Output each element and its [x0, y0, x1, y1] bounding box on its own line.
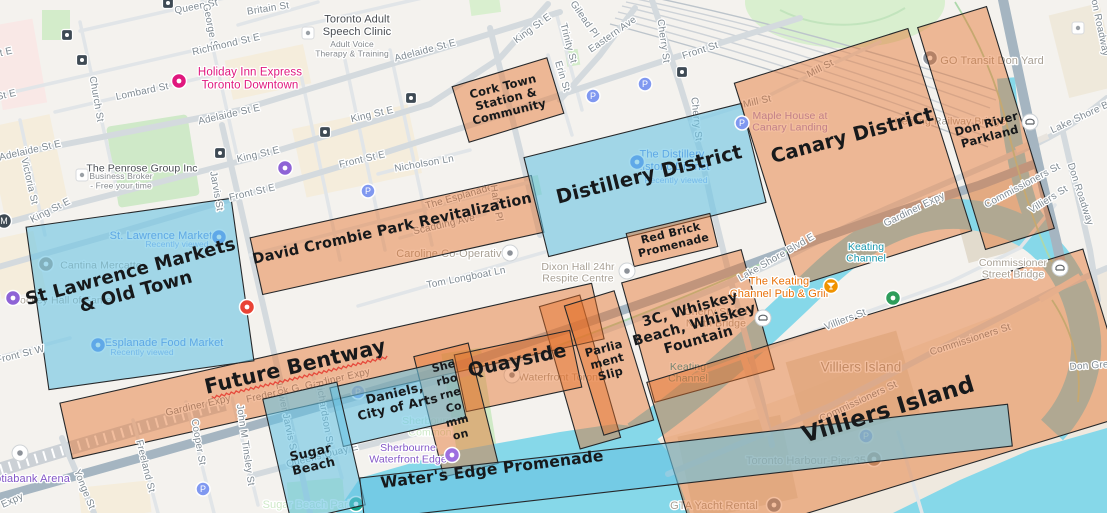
museum-icon[interactable] — [6, 291, 21, 306]
svg-text:P: P — [365, 186, 371, 196]
transit-stop-icon[interactable] — [77, 55, 88, 66]
parking-icon[interactable]: P — [638, 77, 652, 91]
poi-square-icon[interactable] — [302, 27, 314, 39]
poi-icon[interactable] — [502, 245, 518, 261]
dixon-hall-label[interactable]: Dixon Hall 24hrRespite Centre — [541, 261, 615, 285]
bridge-icon[interactable] — [1022, 114, 1038, 130]
poi-square-icon[interactable] — [1072, 22, 1084, 34]
svg-text:Scotiabank Arena: Scotiabank Arena — [0, 473, 71, 485]
poi-square-icon[interactable] — [76, 169, 88, 181]
svg-text:P: P — [739, 118, 745, 128]
svg-text:Toronto AdultSpeech Clinic: Toronto AdultSpeech Clinic — [323, 14, 392, 38]
parking-icon[interactable]: P — [735, 116, 749, 130]
transit-stop-icon[interactable] — [163, 0, 174, 9]
parking-icon[interactable]: P — [196, 482, 210, 496]
transit-stop-icon[interactable] — [320, 127, 331, 138]
svg-text:Dixon Hall 24hrRespite Centre: Dixon Hall 24hrRespite Centre — [541, 261, 615, 285]
holiday-inn-label[interactable]: Holiday Inn ExpressToronto Downtown — [198, 67, 302, 92]
svg-text:Business Broker- Free your tim: Business Broker- Free your time — [89, 171, 152, 191]
transit-stop-icon[interactable] — [406, 93, 417, 104]
keating-channel-label-1[interactable]: KeatingChannel — [846, 241, 886, 265]
hotel-icon[interactable] — [172, 74, 187, 89]
svg-text:KeatingChannel: KeatingChannel — [846, 241, 886, 265]
svg-text:P: P — [590, 91, 596, 101]
svg-text:M: M — [0, 216, 8, 226]
museum-icon[interactable] — [278, 161, 293, 176]
poi-icon[interactable] — [619, 263, 635, 279]
map-canvas[interactable]: The EsplanadeScadding AveHahn PlCherry S… — [0, 0, 1107, 513]
svg-text:P: P — [200, 484, 206, 494]
cocktail-icon[interactable] — [824, 279, 839, 294]
scotiabank-arena-label[interactable]: Scotiabank Arena — [0, 473, 71, 485]
waterfront-edge-icon[interactable] — [445, 448, 460, 463]
bridge-icon[interactable] — [1052, 260, 1068, 276]
sherbourne-edge-label[interactable]: SherbourneWaterfront Edge — [369, 442, 447, 466]
speech-clinic-label[interactable]: Toronto AdultSpeech Clinic — [323, 14, 392, 38]
parking-icon[interactable]: P — [361, 184, 375, 198]
pin-icon[interactable] — [12, 445, 28, 461]
svg-text:CommissionerStreet Bridge: CommissionerStreet Bridge — [979, 257, 1048, 281]
svg-text:SherbourneWaterfront Edge: SherbourneWaterfront Edge — [369, 442, 447, 466]
map-viewport[interactable]: The EsplanadeScadding AveHahn PlCherry S… — [0, 0, 1107, 513]
subway-icon[interactable]: M — [0, 214, 12, 229]
park-poi-icon[interactable] — [886, 291, 901, 306]
transit-stop-icon[interactable] — [677, 67, 688, 78]
commissioner-bridge-label[interactable]: CommissionerStreet Bridge — [979, 257, 1048, 281]
red-pin-icon[interactable] — [240, 300, 255, 315]
svg-text:Holiday Inn ExpressToronto Dow: Holiday Inn ExpressToronto Downtown — [198, 67, 302, 92]
penrose-sub[interactable]: Business Broker- Free your time — [89, 171, 152, 191]
transit-stop-icon[interactable] — [215, 148, 226, 159]
parking-icon[interactable]: P — [586, 89, 600, 103]
bridge-icon[interactable] — [755, 310, 771, 326]
transit-stop-icon[interactable] — [62, 30, 73, 41]
svg-text:P: P — [642, 79, 648, 89]
